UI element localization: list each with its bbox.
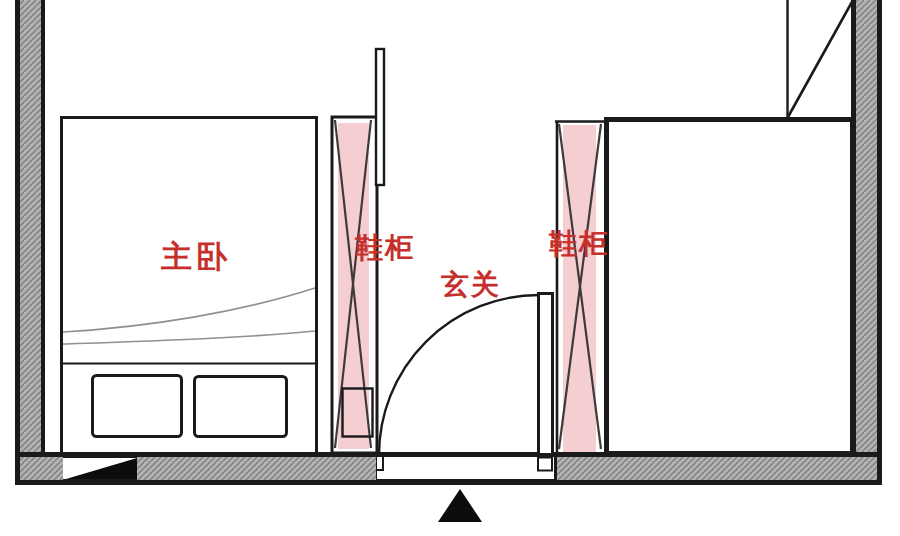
right-room — [607, 120, 853, 454]
label-entry: 玄关 — [441, 271, 501, 299]
right-wall-hatch — [856, 0, 877, 480]
left-wall-hatch — [20, 0, 41, 480]
entry-door-leaf — [539, 294, 553, 455]
label-shoe-cabinet-right: 鞋柜 — [549, 230, 609, 258]
pillow — [195, 377, 287, 437]
door-threshold — [377, 457, 554, 479]
door-jamb-right-block — [538, 458, 552, 471]
door-swing-arc — [379, 295, 539, 455]
pillow — [93, 376, 182, 437]
label-master-bedroom: 主卧 — [161, 241, 231, 272]
bottom-wall-hatch-a — [20, 457, 63, 480]
bottom-wall-hatch-c — [557, 457, 877, 480]
entrance-arrow-icon — [438, 489, 482, 522]
bottom-wall-hatch-b — [137, 457, 376, 480]
floor-plan: 主卧 鞋柜 鞋柜 玄关 — [0, 0, 900, 536]
top-right-diagonal — [788, 0, 853, 117]
label-shoe-cabinet-left: 鞋柜 — [355, 234, 415, 262]
wall-stub — [376, 49, 384, 185]
